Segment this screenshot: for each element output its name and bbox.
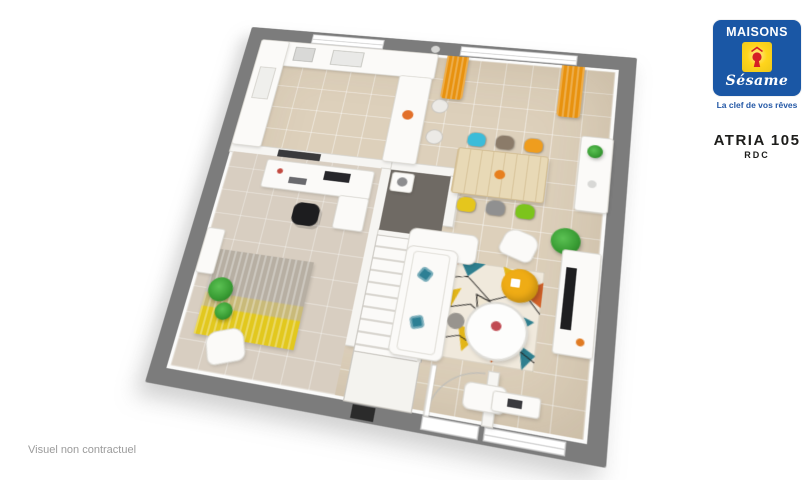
plan-model-title: ATRIA 105 (704, 132, 810, 149)
dining-chair (495, 135, 515, 150)
pouf-tray (510, 278, 520, 288)
keyhole-icon (747, 46, 767, 68)
brand-tagline: La clef de vos rêves (704, 100, 810, 110)
brand-logo: MAISONS Sésame (713, 20, 801, 96)
dining-chair (485, 200, 506, 217)
washing-machine (390, 173, 414, 193)
brand-name-script: Sésame (713, 73, 801, 89)
office-armchair (206, 327, 245, 365)
sofa-pillow (409, 315, 424, 330)
kitchen-sink (330, 50, 365, 68)
disclaimer-text: Visuel non contractuel (28, 444, 136, 456)
dining-chair (515, 203, 536, 220)
page: MAISONS Sésame La clef de vos rêves ATRI… (0, 0, 811, 480)
floorplan-3d-view (145, 27, 637, 468)
dining-chair (524, 138, 544, 153)
plan-floor-level: RDC (704, 150, 810, 160)
dining-chair (467, 132, 487, 147)
kitchen-cooktop (292, 47, 316, 63)
entrance-door-swing (422, 360, 490, 428)
dining-chair (456, 196, 477, 212)
brand-name-top: MAISONS (713, 25, 801, 39)
brand-block: MAISONS Sésame La clef de vos rêves ATRI… (704, 20, 810, 160)
logo-yellow-square (742, 42, 772, 72)
storage-floor (379, 170, 451, 238)
